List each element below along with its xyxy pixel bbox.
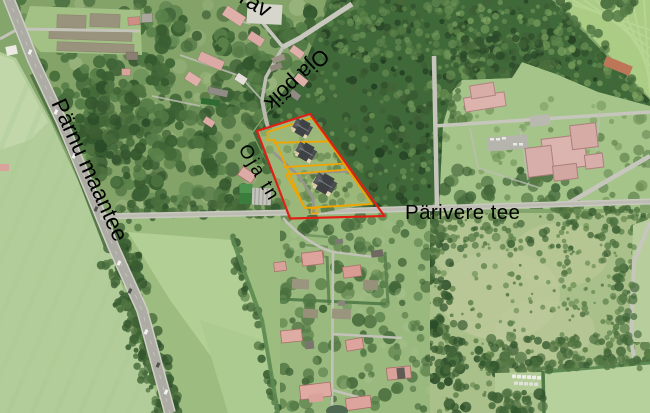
svg-text:Pärivere tee: Pärivere tee <box>405 201 520 224</box>
